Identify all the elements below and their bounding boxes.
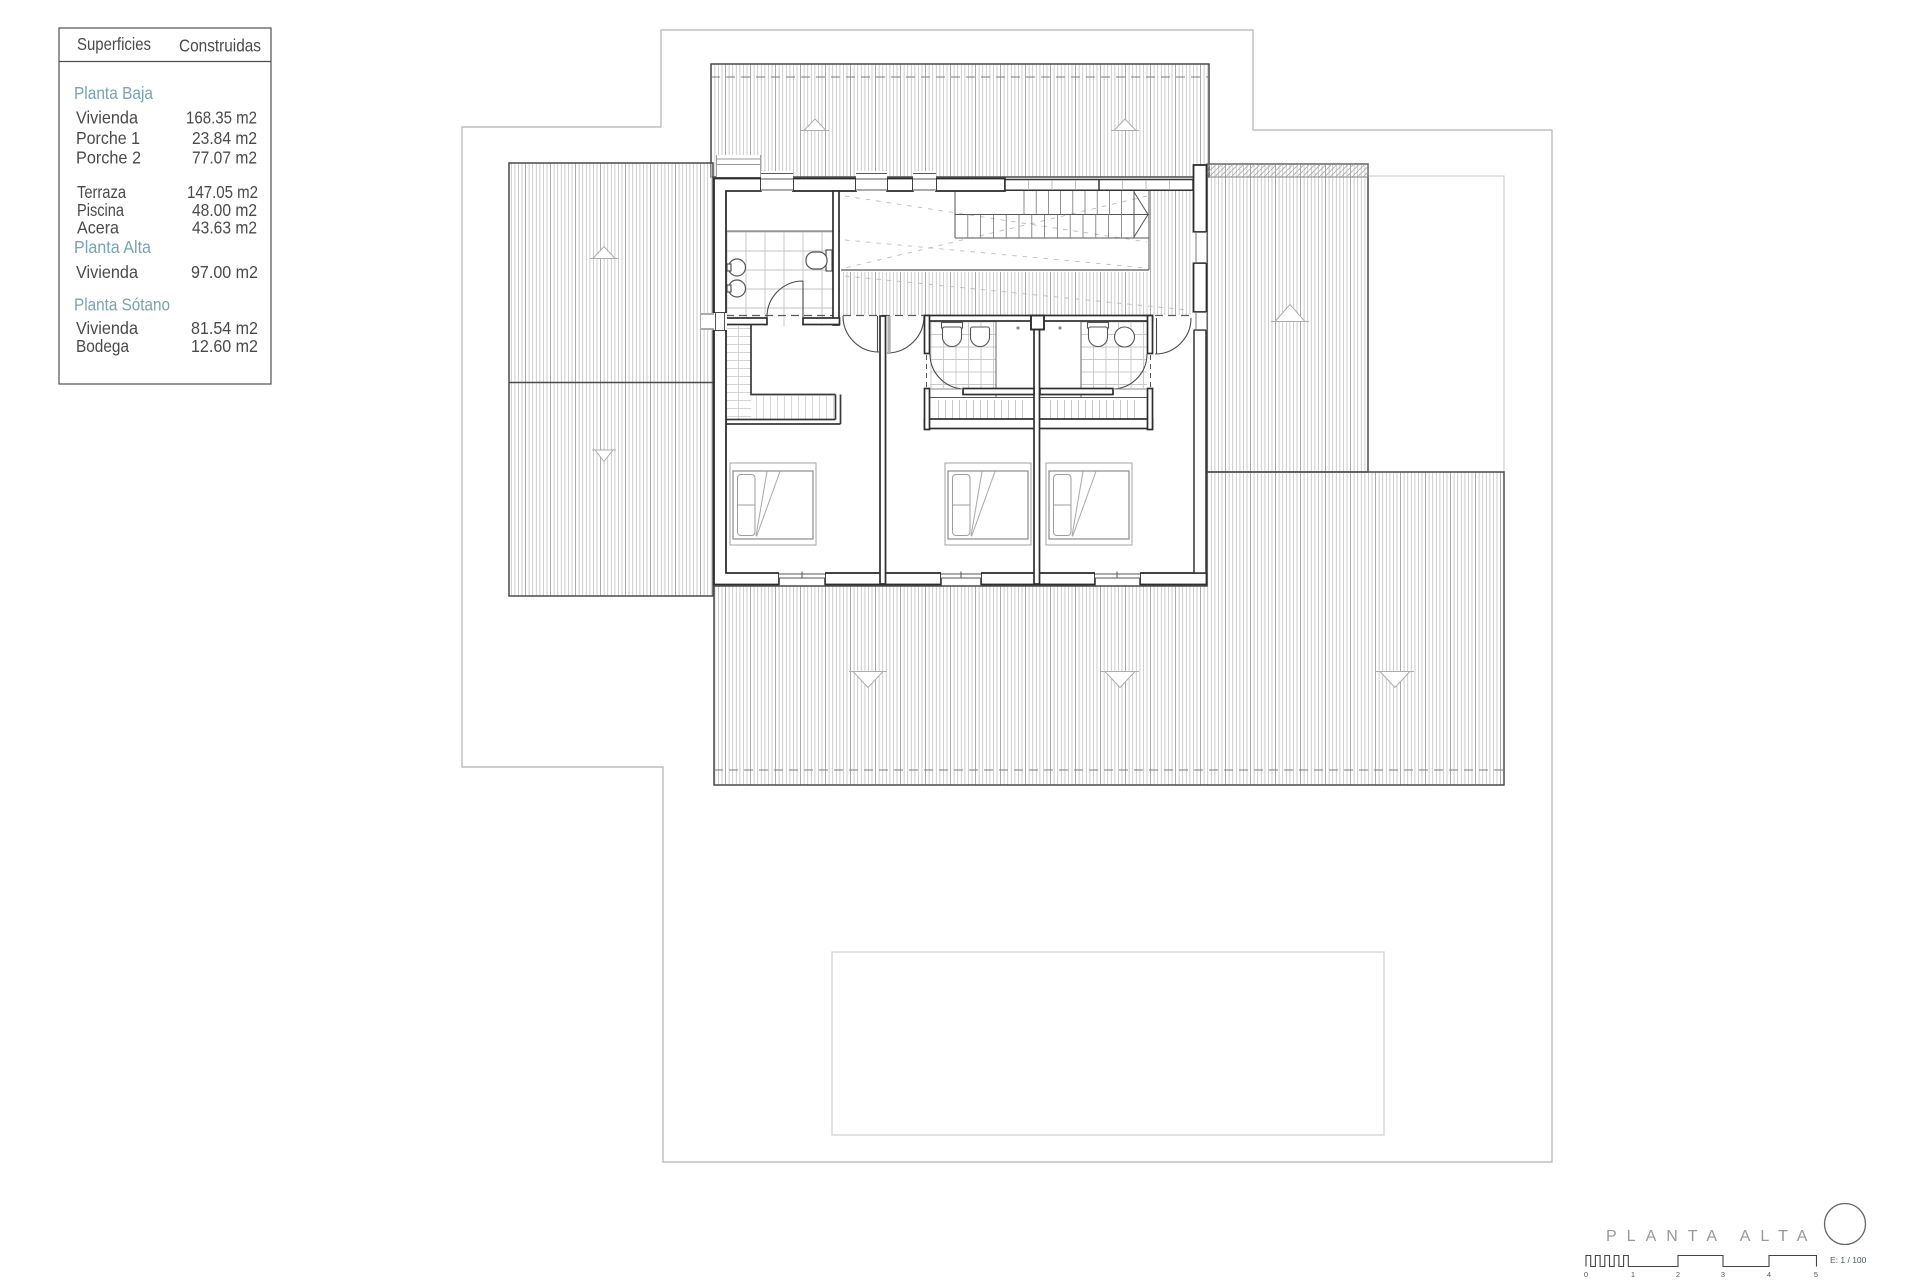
svg-text:168.35 m2: 168.35 m2 [186, 108, 257, 128]
svg-text:Vivienda: Vivienda [76, 318, 138, 338]
svg-text:E: 1 / 100: E: 1 / 100 [1830, 1255, 1867, 1265]
svg-text:Vivienda: Vivienda [76, 262, 138, 282]
svg-text:23.84 m2: 23.84 m2 [192, 128, 257, 148]
svg-text:Terraza: Terraza [77, 182, 126, 202]
svg-text:0: 0 [1584, 1270, 1588, 1279]
svg-text:Acera: Acera [77, 218, 119, 238]
svg-text:Planta Baja: Planta Baja [74, 83, 153, 103]
svg-text:Superficies: Superficies [77, 34, 151, 54]
svg-text:43.63 m2: 43.63 m2 [192, 218, 257, 238]
svg-text:147.05 m2: 147.05 m2 [187, 182, 258, 202]
svg-text:Construidas: Construidas [179, 36, 261, 56]
svg-text:Planta Sótano: Planta Sótano [74, 295, 170, 315]
svg-text:5: 5 [1814, 1270, 1818, 1279]
svg-text:97.00 m2: 97.00 m2 [191, 262, 258, 282]
svg-text:12.60 m2: 12.60 m2 [191, 336, 258, 356]
svg-text:81.54 m2: 81.54 m2 [191, 318, 258, 338]
svg-text:Vivienda: Vivienda [76, 108, 138, 128]
svg-text:Porche 1: Porche 1 [76, 128, 140, 148]
svg-text:3: 3 [1721, 1270, 1725, 1279]
svg-text:77.07 m2: 77.07 m2 [192, 148, 257, 168]
svg-text:4: 4 [1767, 1270, 1771, 1279]
svg-text:PLANTA ALTA: PLANTA ALTA [1606, 1228, 1817, 1245]
svg-text:2: 2 [1676, 1270, 1680, 1279]
svg-text:1: 1 [1631, 1270, 1635, 1279]
svg-text:Bodega: Bodega [76, 336, 129, 356]
svg-text:Porche 2: Porche 2 [76, 148, 141, 168]
svg-text:Planta Alta: Planta Alta [74, 237, 151, 257]
